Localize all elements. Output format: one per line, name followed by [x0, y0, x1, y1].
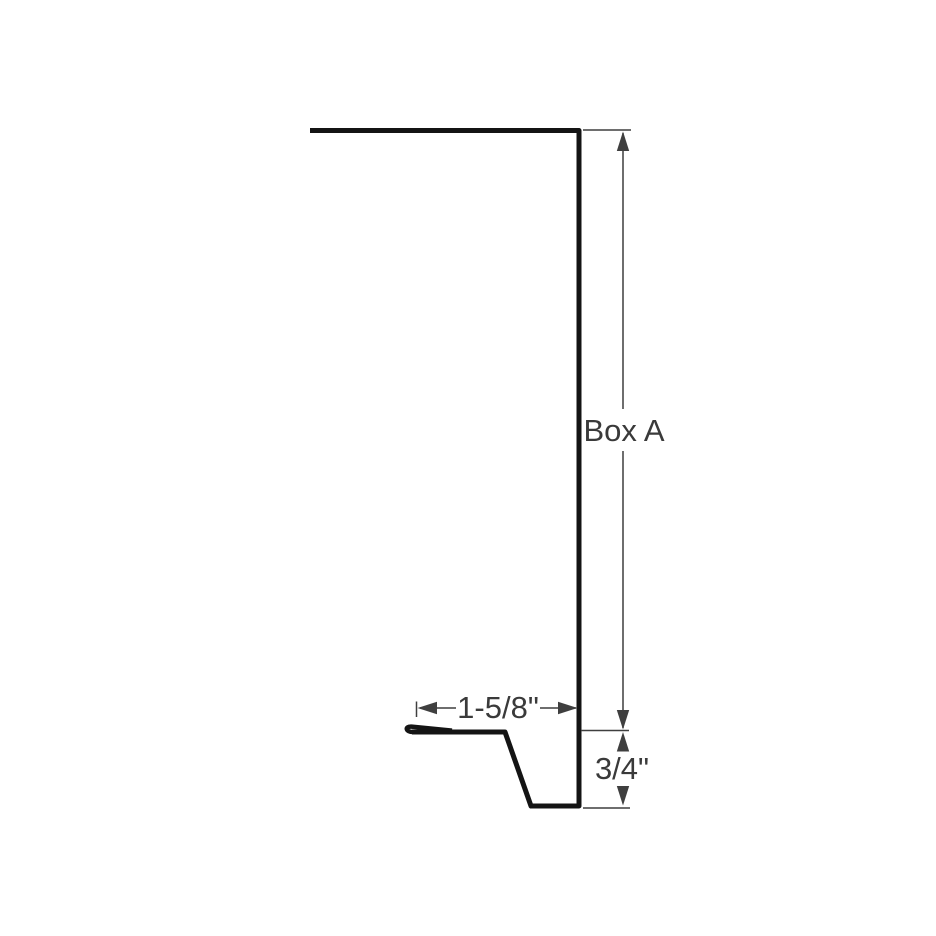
arrow-down-kick-icon: [617, 786, 629, 806]
width-dim-label: 1-5/8": [457, 690, 539, 725]
arrow-up-boxa-icon: [617, 132, 629, 152]
boxa-dim-label: Box A: [584, 413, 665, 448]
kick-dim-label: 3/4": [595, 751, 649, 786]
flashing-profile-diagram: Box A 1-5/8" 3/4": [0, 0, 936, 936]
arrow-down-boxa-icon: [617, 710, 629, 730]
arrow-right-width-icon: [558, 702, 578, 714]
drawing-canvas: Box A 1-5/8" 3/4": [0, 0, 936, 936]
arrow-left-width-icon: [418, 702, 438, 714]
arrow-up-kick-icon: [617, 732, 629, 752]
